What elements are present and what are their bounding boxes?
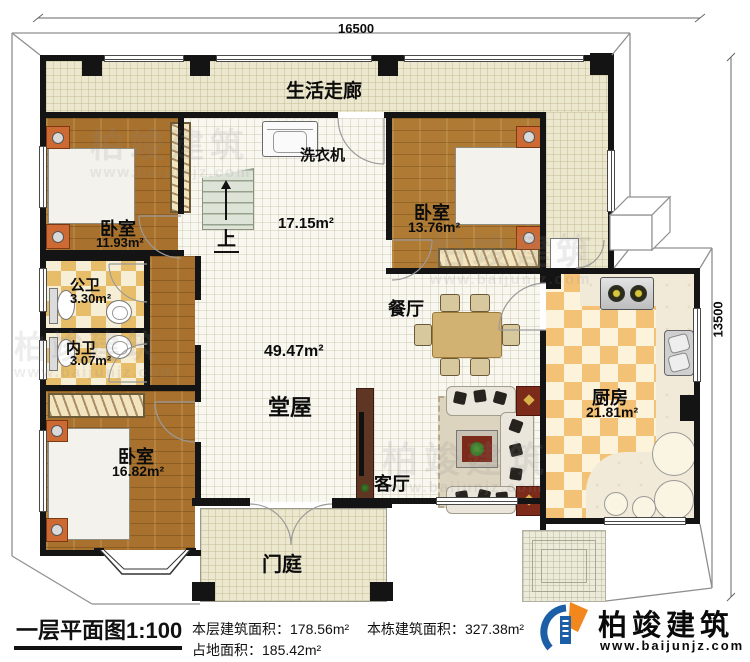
wardrobe: [438, 248, 540, 268]
window: [693, 308, 701, 382]
appliance-label-washer: 洗衣机: [300, 144, 345, 165]
window: [39, 340, 47, 380]
wall-bedroom-tr-right: [540, 118, 546, 268]
nightstand: [46, 126, 70, 149]
room-label-porch: 门庭: [262, 548, 302, 577]
dimension-top-label: 16500: [338, 21, 374, 36]
window: [216, 55, 372, 62]
window: [39, 146, 47, 208]
wall-kitchen-right: [694, 268, 700, 524]
coffee-table: [456, 430, 498, 468]
window: [39, 430, 47, 512]
stairs-up-label: 上: [214, 224, 239, 253]
column: [590, 53, 614, 75]
sofa-pillow: [473, 389, 487, 403]
bay-window-stub: [186, 548, 196, 556]
wall-corridor-bottom-b: [384, 112, 546, 118]
dining-chair: [470, 358, 490, 376]
area-label-inner-bath: 3.07m²: [70, 353, 111, 368]
wall-kitchen-top: [546, 268, 700, 274]
plan-title-underline: [14, 646, 182, 650]
staircase: [202, 168, 254, 230]
window: [104, 55, 184, 62]
plan-title: 一层平面图1:100: [16, 613, 182, 645]
kitchen-sink: [664, 330, 694, 376]
washing-machine-panel: [267, 124, 313, 130]
wall-bedroom-tl-right: [178, 118, 184, 214]
area-label-bedroom-tr: 13.76m²: [408, 219, 460, 235]
land-area-value: 185.42m²: [262, 642, 321, 658]
sink-basin: [667, 352, 691, 374]
bath-passage-floor: [150, 256, 195, 391]
tv-screen: [359, 412, 364, 476]
wall-kitchen-left-b: [540, 330, 546, 524]
building-area-label: 本栋建筑面积：: [367, 621, 465, 637]
dining-chair: [502, 324, 520, 346]
dining-chair: [470, 294, 490, 312]
stairs-up-arrow: [225, 186, 227, 220]
room-label-living: 客厅: [374, 470, 410, 496]
area-label-laundry: 17.15m²: [278, 215, 334, 232]
window: [404, 55, 584, 62]
area-label-hall: 49.47m²: [264, 343, 324, 361]
wall-bottom-jog: [540, 498, 546, 530]
window: [604, 517, 686, 525]
room-label-dining: 餐厅: [388, 295, 424, 321]
sink-basin: [667, 333, 691, 355]
stove-burner: [608, 285, 625, 302]
wardrobe: [48, 393, 145, 418]
nightstand: [46, 518, 68, 542]
stove-burner: [630, 285, 647, 302]
room-label-hall: 堂屋: [268, 390, 312, 422]
bay-window: [100, 550, 190, 574]
sofa-pillow: [509, 467, 523, 481]
kitchen-round-table: [654, 480, 694, 520]
porch-column: [370, 582, 393, 601]
brand-website: www.baijunjz.com: [600, 638, 744, 653]
floor-area-value: 178.56m²: [290, 621, 349, 637]
kitchen-corner-column: [680, 395, 694, 421]
area-label-bedroom-bl: 16.82m²: [112, 463, 164, 479]
land-area-label: 占地面积：: [192, 642, 262, 658]
wall-bedroom-tr-bottom: [386, 268, 546, 274]
chimney: [610, 197, 670, 250]
nightstand: [516, 226, 541, 250]
window: [607, 150, 615, 212]
floor-area-label: 本层建筑面积：: [192, 621, 290, 637]
porch-wall-stub: [332, 500, 392, 508]
wall-hall-left-c: [195, 442, 201, 502]
dining-chair: [440, 358, 460, 376]
column: [82, 55, 102, 76]
dining-table: [432, 312, 502, 358]
nightstand: [516, 126, 541, 148]
bed: [455, 147, 542, 225]
wall-corridor-bottom-a: [40, 112, 338, 118]
area-label-public-bath: 3.30m²: [70, 291, 111, 306]
brand-logo: 柏竣建筑 www.baijunjz.com: [540, 600, 746, 658]
bay-window-stub: [94, 548, 104, 556]
kitchen-stool: [604, 492, 628, 516]
nightstand: [46, 224, 70, 249]
wall-bath-divider: [40, 328, 150, 333]
dining-chair: [440, 294, 460, 312]
kitchen-round-table: [652, 432, 696, 476]
porch-column: [192, 582, 215, 601]
area-summary-line2: 占地面积：185.42m²: [192, 640, 321, 660]
wall-bedroom-tr-left: [386, 118, 392, 240]
sofa-pillow: [453, 391, 467, 405]
wall-hall-left-a: [195, 256, 201, 300]
brand-logo-icon: [540, 600, 594, 656]
column: [378, 55, 398, 76]
patio-inner-border2: [541, 549, 587, 583]
kitchen-corner-column: [546, 274, 561, 289]
bed: [48, 148, 135, 224]
wall-bedroom-bl-bottom-a: [40, 550, 100, 556]
porch-wall-stub: [192, 498, 250, 506]
plant: [470, 442, 484, 456]
room-label-corridor: 生活走廊: [286, 76, 362, 103]
area-label-bedroom-tl: 11.93m²: [96, 235, 144, 250]
gas-stove: [600, 277, 654, 310]
dining-chair: [414, 324, 432, 346]
floor-plan: 柏竣建筑 www.baijunjz.com 柏竣建筑 www.baijunjz.…: [0, 0, 750, 662]
fridge: [550, 238, 579, 270]
plant: [361, 484, 369, 492]
wall-hall-left-b: [195, 345, 201, 402]
nightstand: [46, 420, 68, 442]
building-area-value: 327.38m²: [465, 621, 524, 637]
dimension-right-label: 13500: [711, 278, 726, 338]
wall-bath-bottom: [40, 385, 201, 391]
stairs-up-arrow-head: [221, 180, 231, 189]
window: [436, 497, 518, 505]
window: [39, 268, 47, 312]
area-summary-line1: 本层建筑面积：178.56m² 本栋建筑面积：327.38m²: [192, 619, 524, 639]
area-label-kitchen: 21.81m²: [586, 404, 638, 420]
wall-bath-right: [144, 256, 150, 391]
column: [190, 55, 210, 76]
wall-bath-top: [40, 256, 150, 261]
